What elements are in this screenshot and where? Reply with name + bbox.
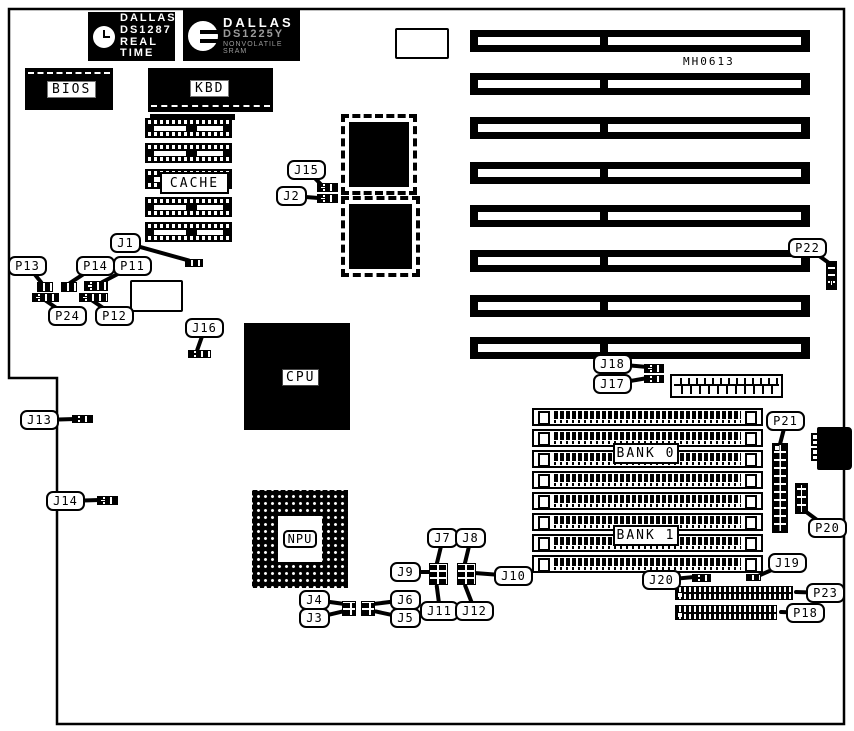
pinblock-P22 [826,261,837,290]
cache-chip [145,143,232,163]
callout-J17: J17 [593,374,632,394]
simm-latch [745,453,757,467]
pinblock-J18 [644,364,664,373]
simm-latch [538,537,550,551]
nvram-part-number: DS1225Y [223,29,295,41]
nvram-chip-ds1225y: DALLAS DS1225Y NONVOLATILE SRAM [183,10,300,61]
pinblock-J17 [644,375,664,383]
rtc-part-number: DS1287 [120,25,177,37]
npu-socket-center: NPU [278,516,322,562]
pinblock-P12 [79,293,108,302]
callout-P18: P18 [786,603,825,623]
pinblock-P18 [675,605,777,620]
callout-J10: J10 [494,566,533,586]
terminal-strip-connector [670,374,783,398]
simm-latch [745,558,757,572]
callout-J18: J18 [593,354,632,374]
callout-J14: J14 [46,491,85,511]
callout-P23: P23 [806,583,845,603]
callout-J4: J4 [299,590,330,610]
isa-slot [470,250,810,272]
callout-J15: J15 [287,160,326,180]
board-id-text: MH0613 [683,55,735,68]
simm-latch [538,495,550,509]
callout-P13: P13 [8,256,47,276]
pinblock-din-aux-1 [811,433,819,446]
simm-latch [538,516,550,530]
callout-P12: P12 [95,306,134,326]
simm-latch [538,474,550,488]
simm-latch [745,474,757,488]
isa-slot [470,73,810,95]
isa-slot [470,205,810,227]
keyboard-din-connector [817,427,852,470]
simm-socket [532,471,763,489]
kbd-label: KBD [190,80,229,97]
pinblock-J16 [188,350,211,358]
callout-J6: J6 [390,590,421,610]
callout-P11: P11 [113,256,152,276]
pinblock-P21 [772,443,788,533]
callout-P22: P22 [788,238,827,258]
simm-latch [538,453,550,467]
bios-label: BIOS [47,81,96,98]
callout-J3: J3 [299,608,330,628]
simm-latch [745,537,757,551]
cpu-label: CPU [282,369,319,386]
rtc-subtitle: REAL TIME [120,37,177,60]
simm-latch [538,411,550,425]
callout-P14: P14 [76,256,115,276]
pinblock-P13 [37,282,53,292]
isa-slot [470,30,810,52]
callout-P21: P21 [766,411,805,431]
pinblock-J15 [317,183,338,192]
callout-P20: P20 [808,518,847,538]
rtc-chip-ds1287: DALLAS DS1287 REAL TIME [88,12,175,61]
pinblock-J19 [746,574,761,581]
motherboard-diagram: DALLAS DS1287 REAL TIME DALLAS DS1225Y N… [0,0,854,731]
isa-slot [470,295,810,317]
outline-rect [130,280,183,312]
nvram-brand: DALLAS [223,16,295,30]
callout-J20: J20 [642,570,681,590]
callout-J16: J16 [185,318,224,338]
callout-J9: J9 [390,562,421,582]
qfp-chip [345,118,413,191]
pinblock-J8-J10-J12-block [457,563,476,585]
pinblock-J13 [72,415,93,423]
callout-J12: J12 [455,601,494,621]
pinblock-J1 [185,259,203,267]
pinblock-P14 [61,282,77,292]
simm-latch [745,432,757,446]
pinblock-J20 [692,574,711,582]
pinblock-J3-J4-block [342,601,356,616]
bank1-label: BANK 1 [613,525,679,546]
simm-latch [538,558,550,572]
callout-J2: J2 [276,186,307,206]
pinblock-din-aux-2 [811,448,819,461]
pinblock-J5-J6-block [361,601,375,616]
callout-P24: P24 [48,306,87,326]
isa-slot [470,162,810,184]
pinblock-P11 [84,281,108,291]
callout-J1: J1 [110,233,141,253]
simm-latch [745,495,757,509]
pinblock-P20 [795,483,808,514]
pinblock-J2 [317,194,338,203]
cache-chip [145,197,232,217]
simm-latch [745,411,757,425]
isa-slot [470,117,810,139]
bank0-label: BANK 0 [613,443,679,464]
callout-J13: J13 [20,410,59,430]
cache-chip [145,118,232,138]
callout-J11: J11 [420,601,459,621]
callout-J7: J7 [427,528,458,548]
simm-socket [532,492,763,510]
pinblock-J14 [97,496,118,505]
alarm-clock-icon [93,26,115,48]
pinblock-P23 [675,586,793,600]
callout-J5: J5 [390,608,421,628]
pinblock-J7-J9-J11-block [429,563,448,585]
simm-latch [745,516,757,530]
callout-J8: J8 [455,528,486,548]
cache-chip [145,222,232,242]
cache-label: CACHE [160,172,229,194]
qfp-chip [345,200,416,273]
isa-slot [470,337,810,359]
pinblock-P24 [32,293,59,302]
nvram-subtitle: NONVOLATILE SRAM [223,41,295,56]
callout-J19: J19 [768,553,807,573]
npu-label: NPU [283,530,318,548]
outline-rect [395,28,449,59]
simm-latch [538,432,550,446]
dallas-d-logo-icon [188,21,218,51]
simm-socket [532,408,763,426]
board-outline [0,0,854,731]
